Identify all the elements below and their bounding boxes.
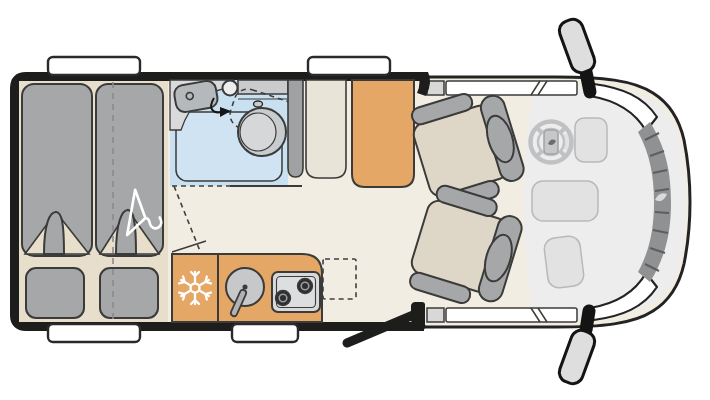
cab-door-top	[427, 81, 577, 95]
cab-door-bottom	[427, 308, 577, 322]
center-console	[532, 181, 598, 221]
bedroom	[19, 81, 168, 322]
cistern	[238, 80, 288, 94]
pillow-right	[100, 268, 158, 318]
burner-left	[276, 291, 291, 306]
partition-wall	[288, 80, 303, 177]
window-mid-top	[308, 57, 390, 75]
cab-door-window-bottom	[446, 308, 577, 322]
floorplan-canvas	[0, 0, 710, 400]
cab-door-window-top	[446, 81, 577, 95]
burner-right	[298, 279, 313, 294]
tall-cabinet-light	[306, 80, 346, 178]
wardrobe-cabinets	[288, 80, 414, 187]
two-burner-hob	[272, 272, 320, 312]
dashboard-panel-right	[575, 118, 607, 162]
tall-cabinet-orange	[352, 80, 414, 187]
window-rear-bottom	[48, 324, 140, 342]
window-rear-top	[48, 57, 140, 75]
lower-console	[543, 235, 585, 289]
fridge	[172, 254, 218, 322]
pillow-left	[26, 268, 84, 318]
window-kitchen-bottom	[232, 324, 298, 342]
shower-control	[223, 81, 238, 96]
